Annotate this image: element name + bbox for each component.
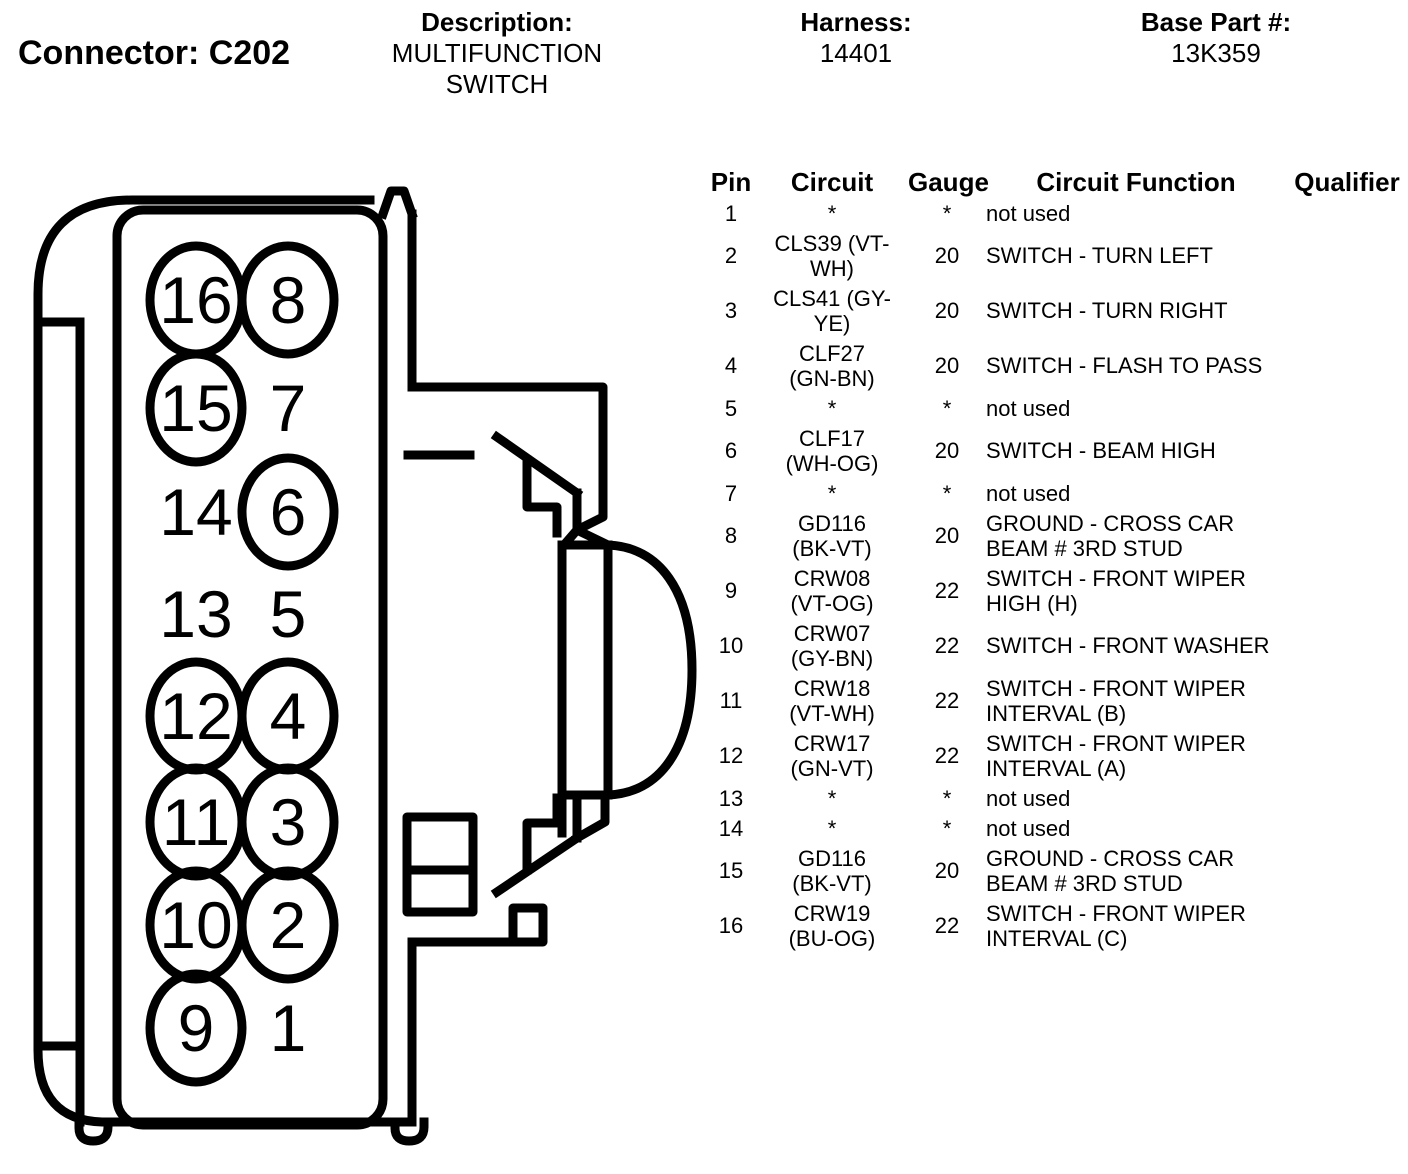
cell-circuit: *: [756, 816, 908, 841]
connector-barrel: [562, 545, 608, 833]
pin-number: 13: [159, 577, 232, 651]
pin-number: 9: [178, 991, 215, 1065]
table-row: 14**not used: [706, 813, 1408, 843]
cell-circuit-function: SWITCH - FRONT WIPER INTERVAL (C): [986, 901, 1286, 951]
connector-latch-top: [497, 437, 608, 545]
pin-number: 6: [270, 475, 307, 549]
pin-cavity-group: 16815714613512411310291: [150, 246, 334, 1082]
cell-pin: 12: [706, 743, 756, 768]
cell-circuit: CRW07 (GY-BN): [756, 621, 908, 671]
cell-circuit-function: SWITCH - FRONT WIPER INTERVAL (A): [986, 731, 1286, 781]
table-row: 9CRW08 (VT-OG)22SWITCH - FRONT WIPER HIG…: [706, 563, 1408, 618]
cell-gauge: 20: [908, 858, 986, 883]
table-row: 10CRW07 (GY-BN)22SWITCH - FRONT WASHER: [706, 618, 1408, 673]
cell-pin: 10: [706, 633, 756, 658]
connector-title: Connector: C202: [18, 34, 290, 73]
connector-diagram: 16815714613512411310291: [0, 170, 704, 1174]
cell-pin: 3: [706, 298, 756, 323]
table-row: 1**not used: [706, 198, 1408, 228]
cell-pin: 2: [706, 243, 756, 268]
table-row: 13**not used: [706, 783, 1408, 813]
cell-pin: 6: [706, 438, 756, 463]
table-row: 12CRW17 (GN-VT)22SWITCH - FRONT WIPER IN…: [706, 728, 1408, 783]
cell-gauge: 22: [908, 688, 986, 713]
cell-gauge: *: [908, 201, 986, 226]
description-label: Description:: [377, 6, 617, 38]
table-row: 3CLS41 (GY-YE)20SWITCH - TURN RIGHT: [706, 283, 1408, 338]
cell-circuit-function: GROUND - CROSS CAR BEAM # 3RD STUD: [986, 846, 1286, 896]
harness-value: 14401: [766, 38, 946, 69]
page-root: { "page": { "background": "#ffffff", "in…: [0, 0, 1408, 1174]
cell-circuit: *: [756, 396, 908, 421]
cell-pin: 7: [706, 481, 756, 506]
cell-pin: 9: [706, 578, 756, 603]
connector-face: [117, 210, 383, 1125]
cell-circuit: CRW19 (BU-OG): [756, 901, 908, 951]
table-row: 4CLF27 (GN-BN)20SWITCH - FLASH TO PASS: [706, 338, 1408, 393]
connector-window: [407, 817, 473, 912]
cell-gauge: *: [908, 396, 986, 421]
cell-circuit: CLS39 (VT-WH): [756, 231, 908, 281]
table-header-row: Pin Circuit Gauge Circuit Function Quali…: [706, 168, 1408, 196]
cell-circuit: *: [756, 481, 908, 506]
cell-circuit-function: not used: [986, 816, 1286, 841]
connector-shroud-wall: [40, 322, 80, 1122]
base-part-block: Base Part #: 13K359: [1096, 6, 1336, 69]
pin-number: 7: [270, 371, 307, 445]
cell-circuit: CRW08 (VT-OG): [756, 566, 908, 616]
connector-barrel-dome: [608, 545, 692, 795]
table-row: 15GD116 (BK-VT)20GROUND - CROSS CAR BEAM…: [706, 843, 1408, 898]
cell-gauge: 20: [908, 523, 986, 548]
cell-circuit: *: [756, 201, 908, 226]
cell-circuit: GD116 (BK-VT): [756, 511, 908, 561]
table-row: 6CLF17 (WH-OG)20SWITCH - BEAM HIGH: [706, 423, 1408, 478]
cell-pin: 16: [706, 913, 756, 938]
pin-table-body: 1**not used2CLS39 (VT-WH)20SWITCH - TURN…: [706, 198, 1408, 953]
cell-pin: 15: [706, 858, 756, 883]
cell-circuit-function: SWITCH - FLASH TO PASS: [986, 353, 1286, 378]
pin-number: 10: [159, 888, 232, 962]
pin-number: 4: [270, 679, 307, 753]
cell-circuit-function: not used: [986, 201, 1286, 226]
cell-circuit-function: not used: [986, 786, 1286, 811]
cell-circuit: CLS41 (GY-YE): [756, 286, 908, 336]
cell-gauge: *: [908, 786, 986, 811]
description-value: MULTIFUNCTION SWITCH: [377, 38, 617, 100]
column-header-pin: Pin: [706, 168, 756, 196]
table-row: 7**not used: [706, 478, 1408, 508]
pin-number: 3: [270, 785, 307, 859]
description-block: Description: MULTIFUNCTION SWITCH: [377, 6, 617, 100]
table-row: 16CRW19 (BU-OG)22SWITCH - FRONT WIPER IN…: [706, 898, 1408, 953]
cell-circuit: CRW18 (VT-WH): [756, 676, 908, 726]
table-row: 5**not used: [706, 393, 1408, 423]
base-part-label: Base Part #:: [1096, 6, 1336, 38]
harness-block: Harness: 14401: [766, 6, 946, 69]
cell-circuit-function: SWITCH - BEAM HIGH: [986, 438, 1286, 463]
cell-gauge: 20: [908, 353, 986, 378]
connector-latch-bottom: [497, 795, 605, 892]
pin-number: 15: [159, 371, 232, 445]
cell-circuit-function: not used: [986, 396, 1286, 421]
cell-pin: 14: [706, 816, 756, 841]
cell-circuit: *: [756, 786, 908, 811]
table-row: 8GD116 (BK-VT)20GROUND - CROSS CAR BEAM …: [706, 508, 1408, 563]
pin-number: 1: [270, 991, 307, 1065]
cell-circuit-function: not used: [986, 481, 1286, 506]
cell-gauge: 22: [908, 578, 986, 603]
cell-circuit: GD116 (BK-VT): [756, 846, 908, 896]
column-header-gauge: Gauge: [908, 168, 986, 196]
cell-circuit-function: SWITCH - TURN LEFT: [986, 243, 1286, 268]
harness-label: Harness:: [766, 6, 946, 38]
cell-circuit-function: SWITCH - FRONT WASHER: [986, 633, 1286, 658]
cell-pin: 1: [706, 201, 756, 226]
pin-table: Pin Circuit Gauge Circuit Function Quali…: [706, 168, 1408, 953]
pin-number: 12: [159, 679, 232, 753]
cell-circuit-function: GROUND - CROSS CAR BEAM # 3RD STUD: [986, 511, 1286, 561]
cell-pin: 8: [706, 523, 756, 548]
cell-circuit-function: SWITCH - TURN RIGHT: [986, 298, 1286, 323]
cell-gauge: 20: [908, 298, 986, 323]
cell-circuit-function: SWITCH - FRONT WIPER INTERVAL (B): [986, 676, 1286, 726]
base-part-value: 13K359: [1096, 38, 1336, 69]
cell-pin: 4: [706, 353, 756, 378]
cell-pin: 13: [706, 786, 756, 811]
cell-circuit: CLF27 (GN-BN): [756, 341, 908, 391]
pin-number: 16: [159, 263, 232, 337]
cell-circuit-function: SWITCH - FRONT WIPER HIGH (H): [986, 566, 1286, 616]
column-header-qualifier: Qualifier: [1286, 168, 1408, 196]
table-row: 11CRW18 (VT-WH)22SWITCH - FRONT WIPER IN…: [706, 673, 1408, 728]
column-header-circuit-function: Circuit Function: [986, 168, 1286, 196]
cell-gauge: 22: [908, 633, 986, 658]
pin-number: 11: [162, 785, 231, 859]
cell-gauge: 22: [908, 743, 986, 768]
cell-circuit: CLF17 (WH-OG): [756, 426, 908, 476]
pin-number: 2: [270, 888, 307, 962]
cell-gauge: 20: [908, 243, 986, 268]
column-header-circuit: Circuit: [756, 168, 908, 196]
cell-gauge: 20: [908, 438, 986, 463]
pin-number: 8: [270, 263, 307, 337]
cell-pin: 11: [706, 688, 756, 713]
cell-gauge: *: [908, 816, 986, 841]
pin-number: 5: [270, 577, 307, 651]
pin-number: 14: [159, 475, 232, 549]
table-row: 2CLS39 (VT-WH)20SWITCH - TURN LEFT: [706, 228, 1408, 283]
cell-pin: 5: [706, 396, 756, 421]
cell-gauge: *: [908, 481, 986, 506]
cell-circuit: CRW17 (GN-VT): [756, 731, 908, 781]
cell-gauge: 22: [908, 913, 986, 938]
